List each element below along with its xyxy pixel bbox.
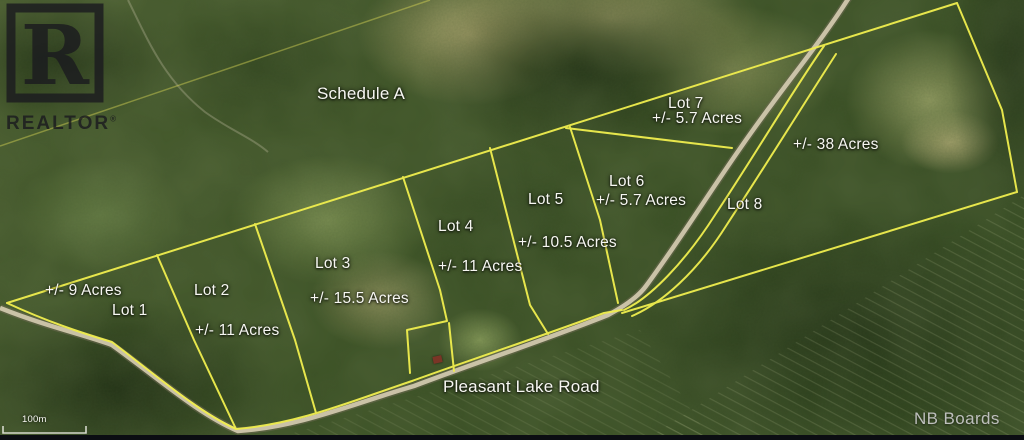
map-overlay-graphics [0, 0, 1024, 440]
scale-label: 100m [22, 415, 47, 425]
realtor-watermark: R REALTOR® [4, 2, 124, 135]
lot-8-label: Lot 8 [727, 196, 762, 213]
lot-1-label: Lot 1 [112, 302, 147, 319]
nb-boards-watermark: NB Boards [914, 409, 1000, 429]
realtor-logo-letter: R [21, 8, 90, 104]
lot-3-label: Lot 3 [315, 255, 350, 272]
lot-2-label: Lot 2 [194, 282, 229, 299]
lot-4-acreage-label: +/- 11 Acres [438, 258, 522, 275]
lot-5-acreage-label: +/- 10.5 Acres [518, 234, 617, 251]
registered-symbol: ® [110, 115, 116, 124]
lot-6-label: Lot 6 [609, 173, 644, 190]
lot-5-label: Lot 5 [528, 191, 563, 208]
bottom-letterbox-strip [0, 435, 1024, 440]
lot-8-acreage-label: +/- 38 Acres [793, 136, 879, 153]
lot-3-acreage-label: +/- 15.5 Acres [310, 290, 409, 307]
road-name-label: Pleasant Lake Road [443, 378, 600, 397]
lot-7-acreage-label: +/- 5.7 Acres [652, 110, 742, 127]
lot-6-acreage-label: +/- 5.7 Acres [596, 192, 686, 209]
realtor-brand-text: REALTOR® [6, 113, 124, 135]
aerial-parcel-map: R REALTOR® Schedule A +/- 9 Acres Lot 1 … [0, 0, 1024, 440]
schedule-a-label: Schedule A [317, 85, 405, 104]
lot-2-acreage-label: +/- 11 Acres [195, 322, 279, 339]
lot-4-label: Lot 4 [438, 218, 473, 235]
lot-1-acreage-label: +/- 9 Acres [45, 282, 122, 299]
realtor-logo-icon: R [4, 2, 108, 106]
